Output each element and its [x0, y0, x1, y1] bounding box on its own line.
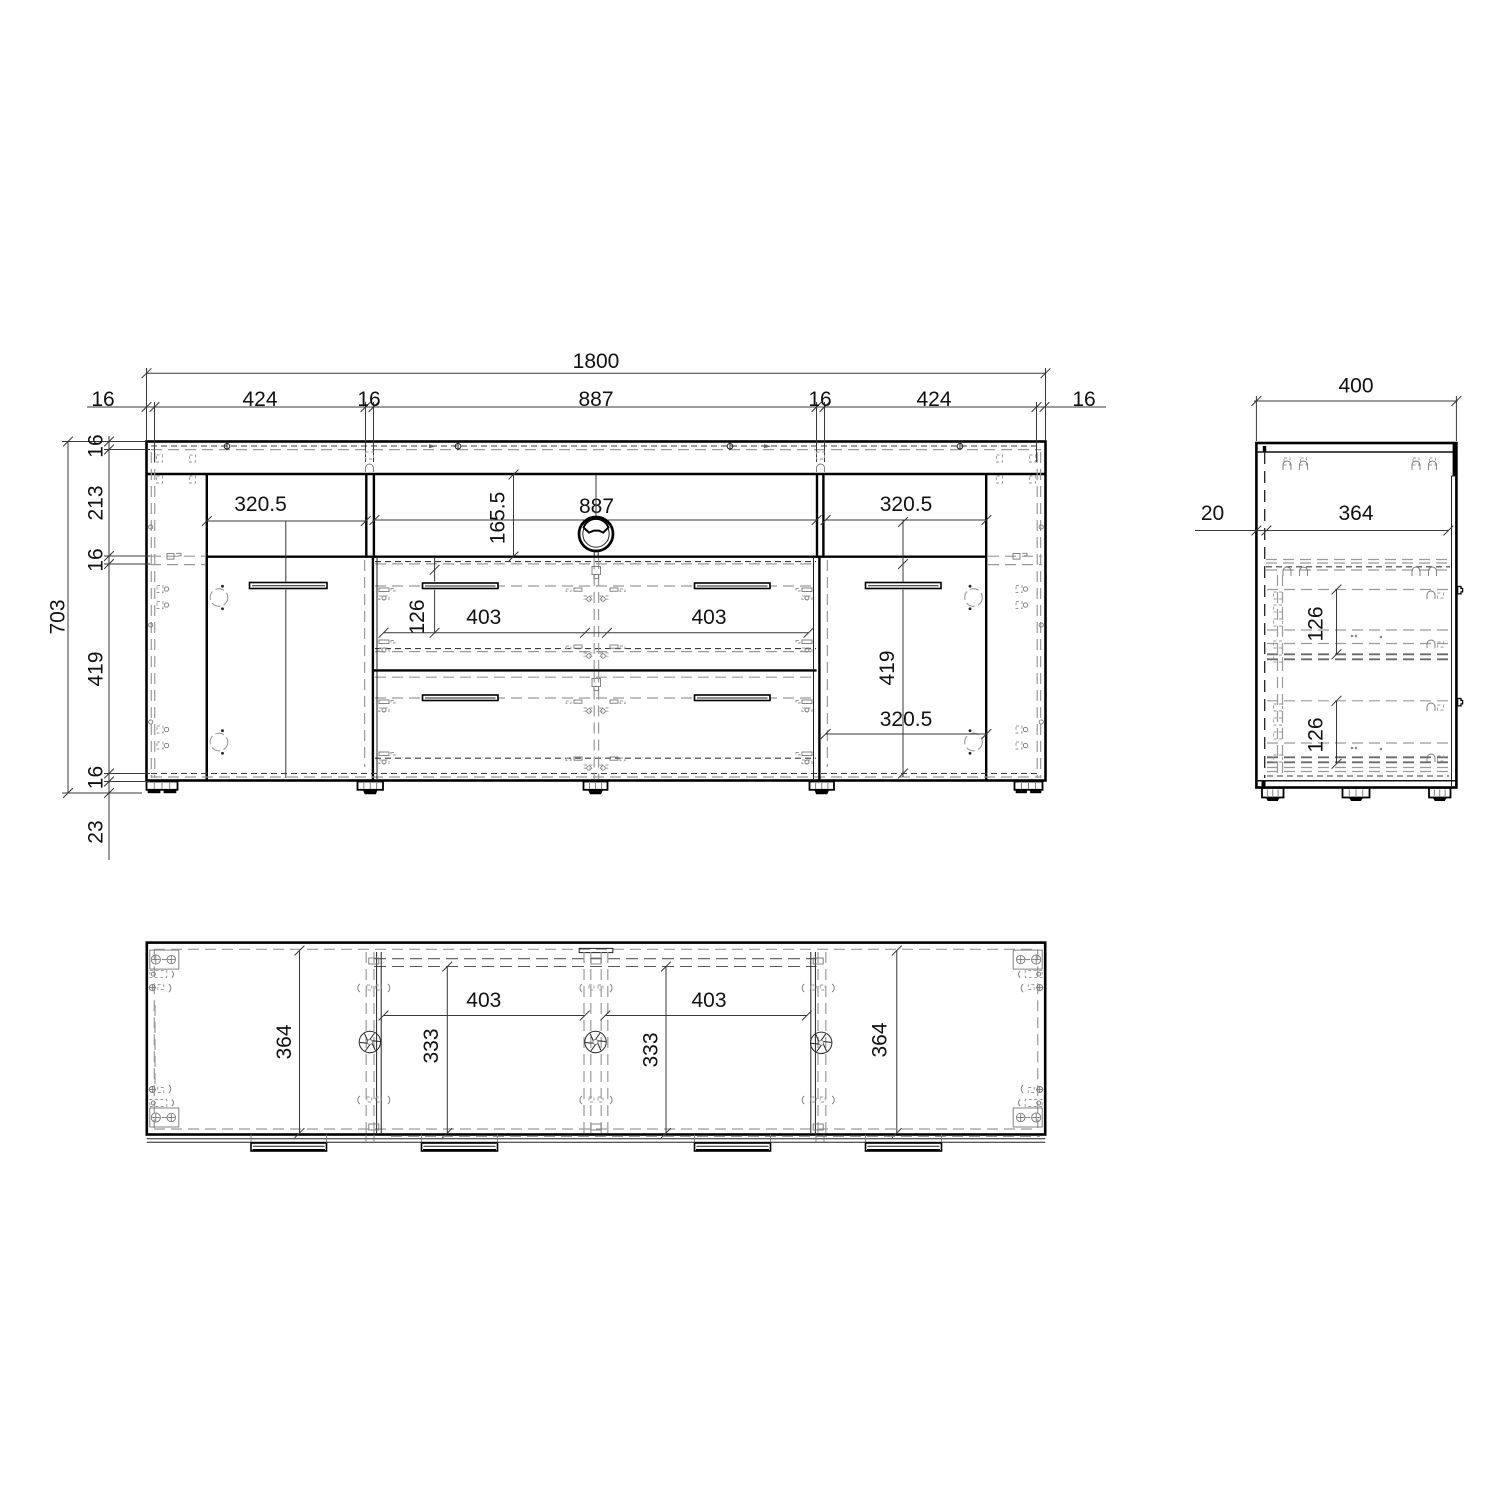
svg-text:887: 887 — [578, 388, 613, 411]
svg-text:364: 364 — [273, 1024, 296, 1059]
svg-text:403: 403 — [691, 989, 726, 1012]
svg-text:20: 20 — [1201, 502, 1224, 525]
svg-text:23: 23 — [85, 820, 108, 843]
svg-text:16: 16 — [357, 388, 380, 411]
svg-text:16: 16 — [85, 766, 108, 789]
svg-text:419: 419 — [876, 650, 899, 685]
svg-text:213: 213 — [85, 485, 108, 520]
svg-text:126: 126 — [406, 599, 429, 634]
svg-text:403: 403 — [466, 606, 501, 629]
svg-text:16: 16 — [85, 434, 108, 457]
svg-text:403: 403 — [691, 606, 726, 629]
svg-text:333: 333 — [640, 1032, 663, 1067]
svg-text:126: 126 — [1305, 717, 1328, 752]
svg-text:703: 703 — [47, 599, 70, 634]
svg-text:16: 16 — [1072, 388, 1095, 411]
svg-text:403: 403 — [466, 989, 501, 1012]
svg-text:16: 16 — [85, 548, 108, 571]
svg-text:165.5: 165.5 — [487, 492, 510, 545]
svg-text:126: 126 — [1305, 606, 1328, 641]
svg-text:16: 16 — [91, 388, 114, 411]
svg-text:333: 333 — [420, 1028, 443, 1063]
svg-text:419: 419 — [85, 651, 108, 686]
svg-text:364: 364 — [869, 1022, 892, 1057]
svg-text:16: 16 — [808, 388, 831, 411]
svg-text:364: 364 — [1338, 502, 1373, 525]
svg-text:424: 424 — [916, 388, 951, 411]
svg-text:1800: 1800 — [573, 350, 620, 373]
svg-text:424: 424 — [242, 388, 277, 411]
svg-text:320.5: 320.5 — [880, 493, 933, 516]
svg-text:320.5: 320.5 — [234, 493, 287, 516]
svg-text:400: 400 — [1338, 375, 1373, 398]
svg-text:320.5: 320.5 — [880, 708, 933, 731]
